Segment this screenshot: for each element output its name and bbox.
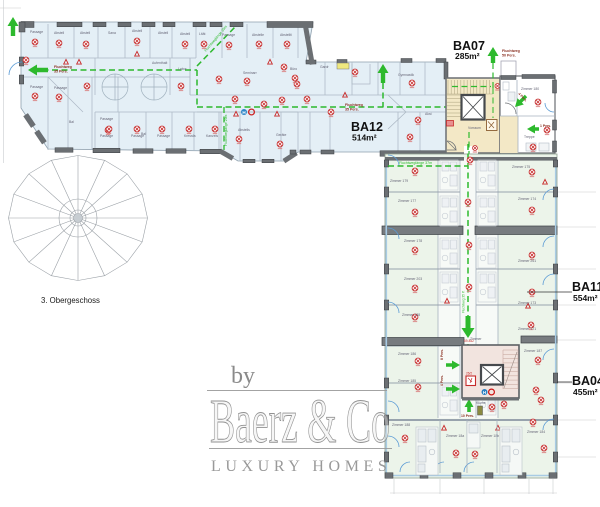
svg-text:Labor: Labor [178,67,188,71]
svg-text:Zimmer 187: Zimmer 187 [524,349,542,353]
svg-text:Fluchtweglänge 29m: Fluchtweglänge 29m [224,115,228,146]
svg-text:35 Pers.: 35 Pers. [54,70,68,74]
svg-text:Abstell: Abstell [80,31,90,35]
svg-text:Zimmer 174: Zimmer 174 [518,197,536,201]
svg-text:Fluchtweg: Fluchtweg [345,103,363,107]
svg-text:35 Pers.: 35 Pers. [345,108,359,112]
svg-text:Passage: Passage [157,134,170,138]
svg-text:Zimmer 18a: Zimmer 18a [446,434,464,438]
svg-text:Kanzels: Kanzels [206,134,218,138]
svg-text:Abstellti: Abstellti [280,33,292,37]
svg-text:Zimmer 203: Zimmer 203 [404,277,422,281]
svg-text:Büro: Büro [290,67,297,71]
svg-text:8 Pers.: 8 Pers. [440,349,444,360]
svg-text:554m²: 554m² [573,293,598,303]
svg-text:Abstelle: Abstelle [252,33,264,37]
svg-text:4 Pers.: 4 Pers. [440,375,444,386]
svg-text:50 Pers.: 50 Pers. [502,54,516,58]
svg-text:285m²: 285m² [455,51,480,61]
svg-text:LUXURY HOMES: LUXURY HOMES [211,458,391,475]
svg-text:Bal: Bal [69,120,74,124]
svg-text:Seminarr: Seminarr [243,71,258,75]
svg-text:Fluchtweg: Fluchtweg [502,49,520,53]
svg-text:by: by [231,363,255,389]
svg-text:514m²: 514m² [352,133,377,143]
svg-text:Passage: Passage [100,134,113,138]
svg-text:Zimmer 188: Zimmer 188 [392,423,410,427]
svg-text:1 Pers.: 1 Pers. [540,124,551,128]
svg-text:Zimmer 188: Zimmer 188 [402,313,420,317]
svg-text:10 Pers.: 10 Pers. [461,414,474,418]
svg-text:Fluchtweg: Fluchtweg [54,65,72,69]
svg-text:Zimmer 179: Zimmer 179 [390,179,408,183]
svg-text:Baerz & Co: Baerz & Co [210,388,390,456]
svg-text:Gymnastik: Gymnastik [398,73,414,77]
svg-text:Zimmer 18b: Zimmer 18b [481,434,499,438]
svg-text:Zimmer 175: Zimmer 175 [512,165,530,169]
svg-text:Zimmer 186: Zimmer 186 [398,352,416,356]
svg-text:Zimmer 171: Zimmer 171 [518,327,536,331]
svg-text:Akst: Akst [425,112,432,116]
svg-text:H: H [483,390,486,395]
svg-text:Kressfa: Kressfa [184,134,196,138]
svg-text:Abstell: Abstell [132,29,142,33]
svg-text:Zimmer 185: Zimmer 185 [398,379,416,383]
svg-text:Zimmer 178: Zimmer 178 [404,239,422,243]
svg-text:BA04: BA04 [572,374,600,388]
svg-text:Aufenthalt: Aufenthalt [152,61,167,65]
svg-text:Abstell: Abstell [158,31,168,35]
svg-text:Lität: Lität [199,32,205,36]
svg-text:Zimmer 177: Zimmer 177 [398,199,416,203]
svg-text:BA11: BA11 [572,280,600,294]
svg-text:Abstell: Abstell [180,32,190,36]
svg-text:26/2: 26/2 [466,372,472,376]
svg-text:Zimmer: Zimmer [470,337,482,341]
svg-text:Abstells: Abstells [238,128,250,132]
svg-text:Fluchtweg 35 P.: Fluchtweg 35 P. [462,290,466,313]
svg-text:Fluchtweglänge 37m: Fluchtweglänge 37m [399,161,432,165]
svg-text:Zimmer 261: Zimmer 261 [518,259,536,263]
svg-text:Geräte: Geräte [276,133,286,137]
svg-text:Zimmer 173: Zimmer 173 [518,301,536,305]
svg-text:Zimmer 184: Zimmer 184 [527,430,545,434]
svg-text:Vorraum: Vorraum [468,126,481,130]
svg-text:Treppe: Treppe [524,135,535,139]
svg-text:Abstell: Abstell [54,31,64,35]
svg-text:Zimmer 180: Zimmer 180 [521,87,539,91]
svg-text:Küche: Küche [476,401,486,405]
svg-text:Gardr: Gardr [320,65,330,69]
svg-text:Passage: Passage [222,33,235,37]
svg-text:Passage: Passage [30,30,43,34]
svg-text:Sana: Sana [108,31,116,35]
svg-text:Passage: Passage [100,117,113,121]
svg-text:Passage: Passage [54,86,67,90]
svg-text:Passage: Passage [30,85,43,89]
svg-text:Bal: Bal [141,132,146,136]
svg-text:455m²: 455m² [573,387,598,397]
svg-text:3. Obergeschoss: 3. Obergeschoss [41,296,100,305]
